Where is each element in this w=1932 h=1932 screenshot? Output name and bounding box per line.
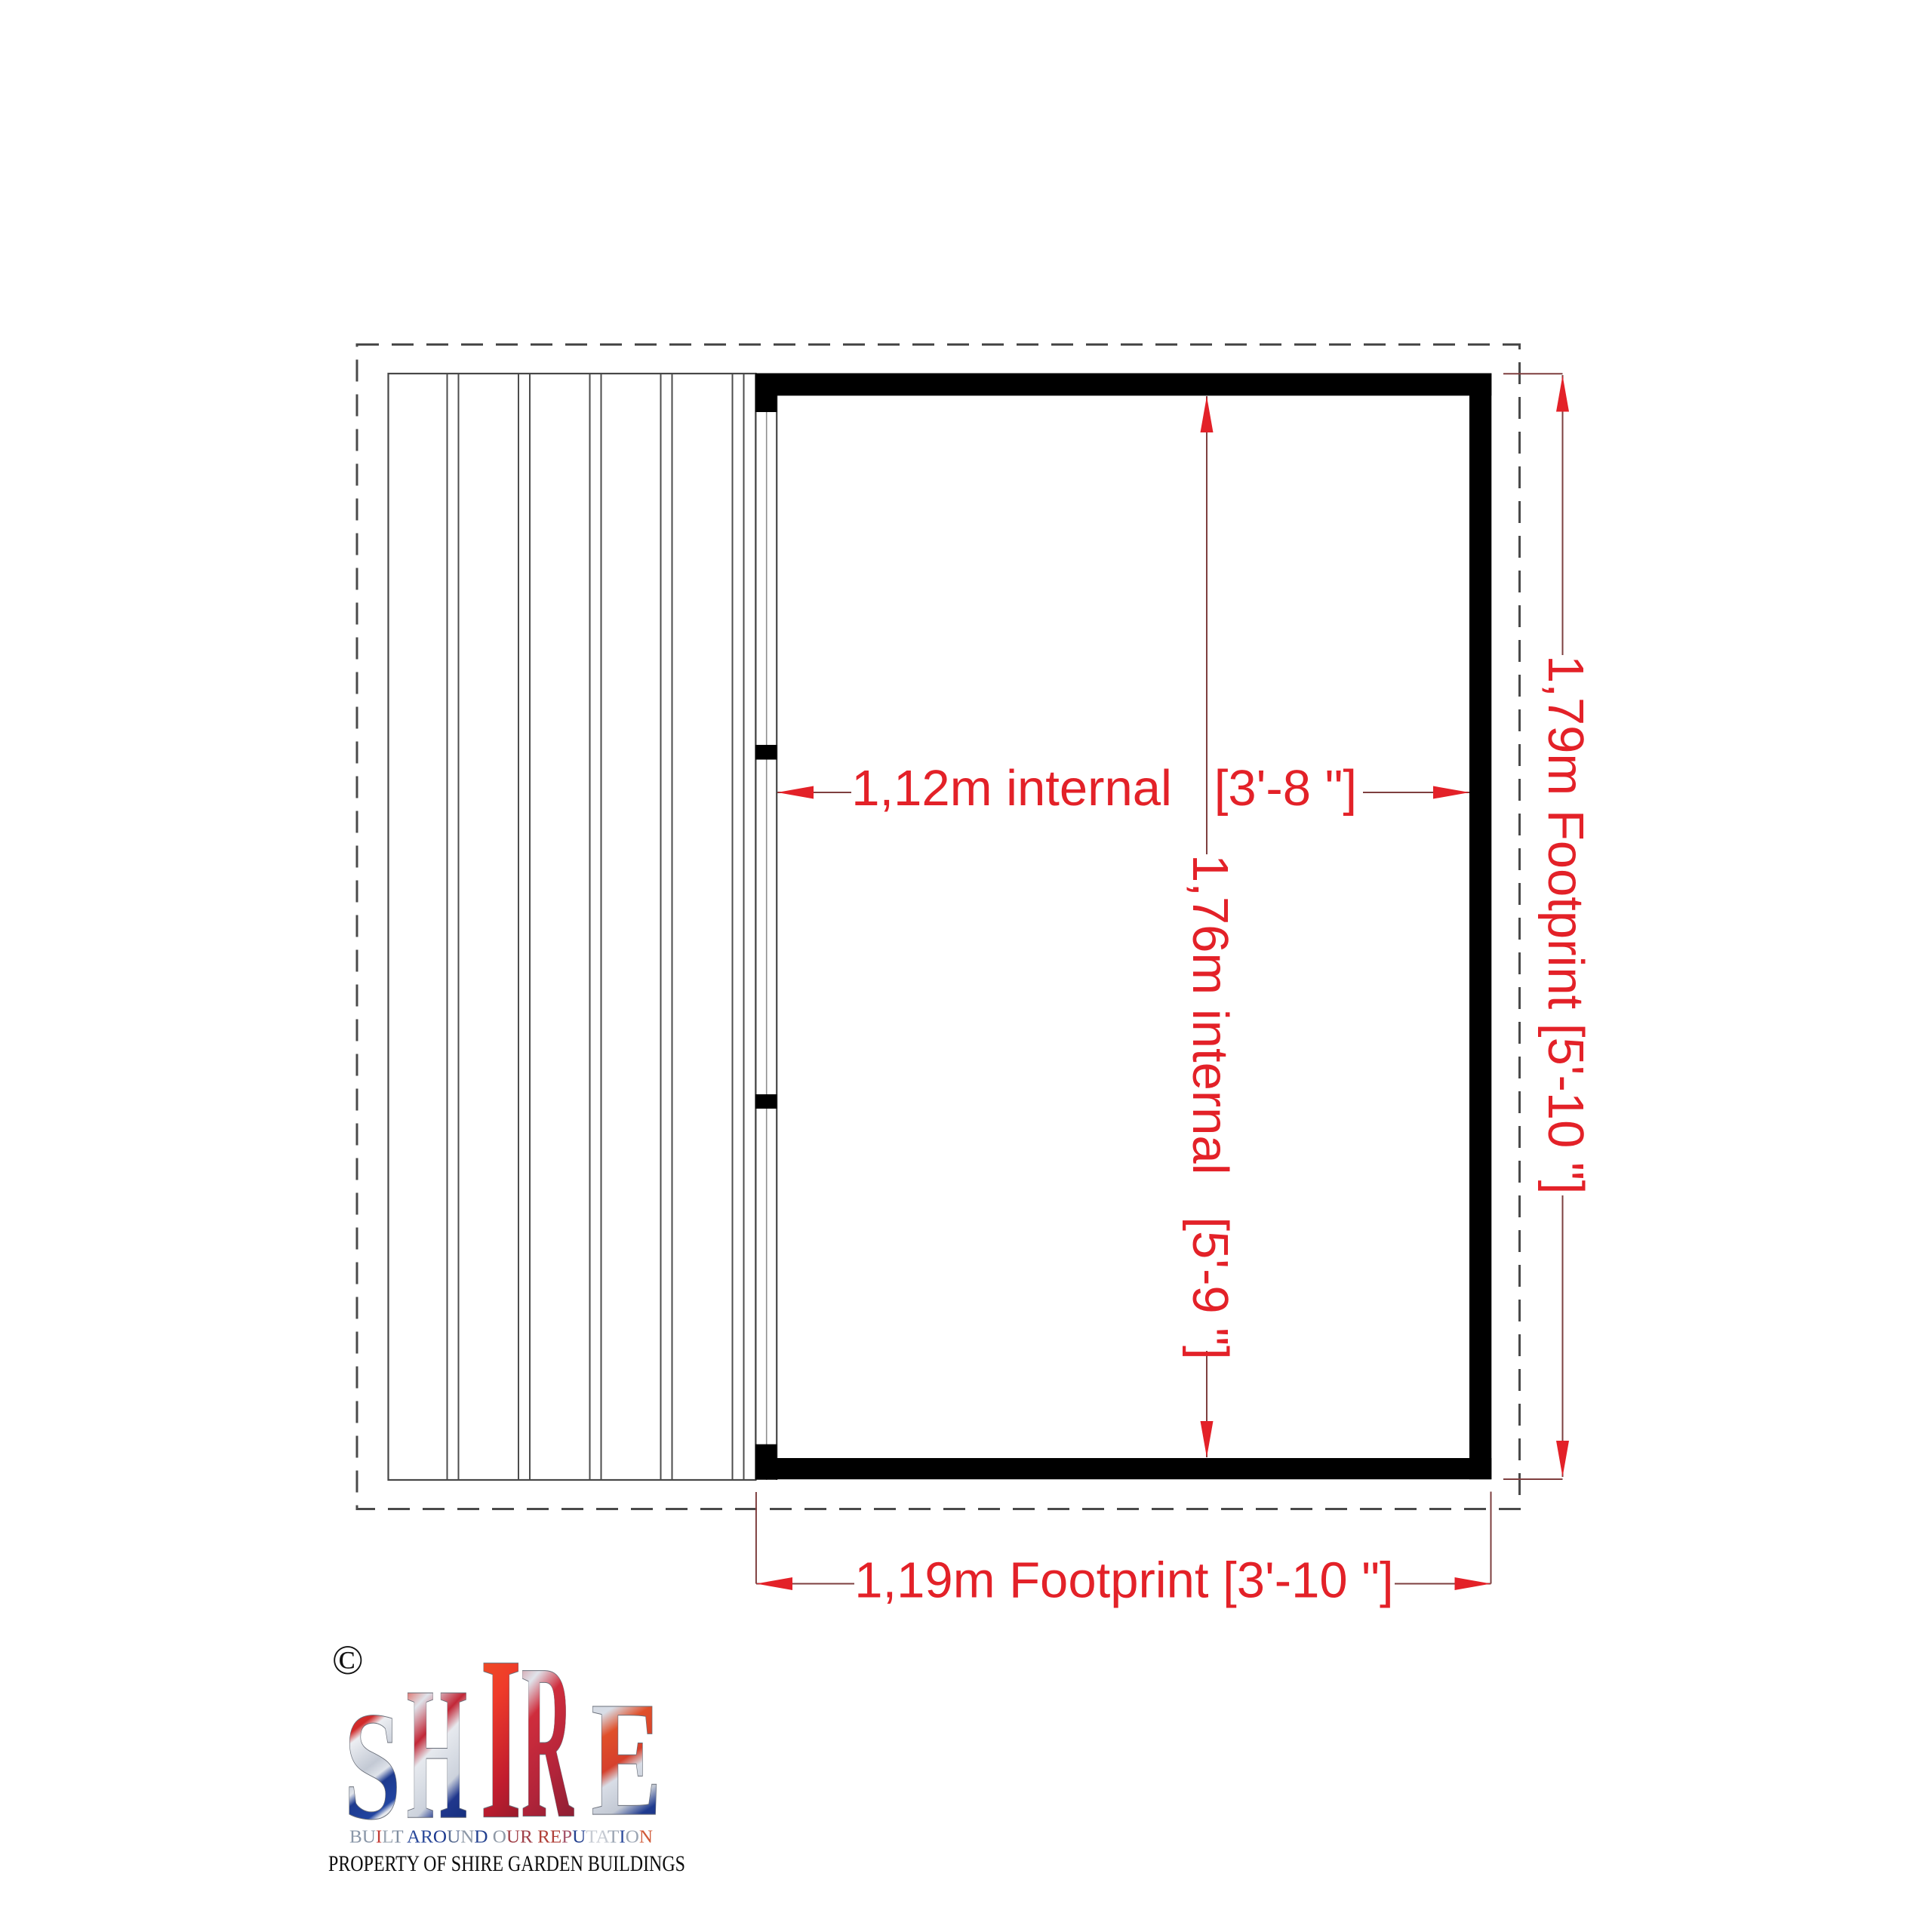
svg-text:1,79m Footprint [5'-10 "]: 1,79m Footprint [5'-10 "]: [1537, 655, 1594, 1194]
svg-text:1,19m Footprint [3'-10 "]: 1,19m Footprint [3'-10 "]: [854, 1552, 1393, 1609]
svg-text:E: E: [591, 1667, 662, 1850]
svg-text:1,76m internal [5'-9 "]: 1,76m internal [5'-9 "]: [1182, 854, 1238, 1360]
svg-text:S: S: [344, 1679, 401, 1852]
svg-text:1,12m internal [3'-8 "]: 1,12m internal [3'-8 "]: [851, 760, 1357, 817]
svg-text:PROPERTY OF SHIRE GARDEN BUILD: PROPERTY OF SHIRE GARDEN BUILDINGS: [328, 1852, 685, 1876]
svg-text:©: ©: [332, 1637, 364, 1683]
svg-text:BUILT AROUND OUR REPUTATION: BUILT AROUND OUR REPUTATION: [349, 1827, 653, 1847]
